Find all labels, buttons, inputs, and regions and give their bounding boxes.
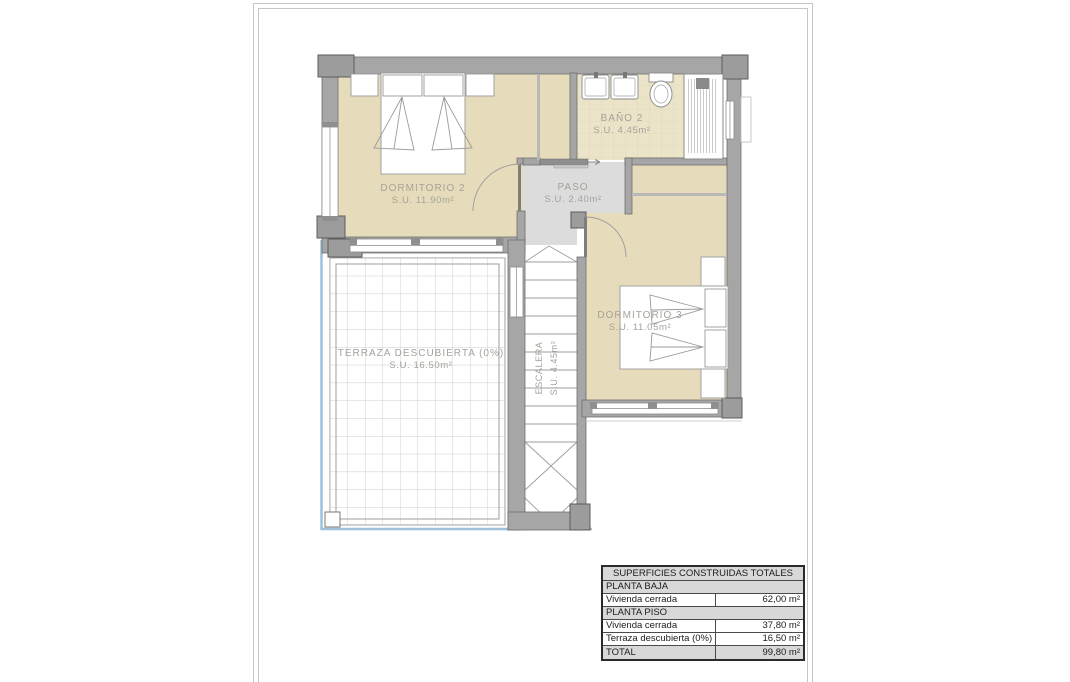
wall-stairs-right	[577, 257, 586, 530]
areas-table: SUPERFICIES CONSTRUIDAS TOTALES PLANTA B…	[601, 565, 805, 661]
nightstand-bottom	[701, 368, 725, 398]
areas-table-title: SUPERFICIES CONSTRUIDAS TOTALES	[603, 567, 803, 580]
dormitorio-3-closet-floor	[632, 162, 727, 217]
label-terraza: TERRAZA DESCUBIERTA (0%)	[338, 348, 504, 359]
label-dormitorio-2: DORMITORIO 2	[380, 183, 465, 194]
label-paso: PASO	[557, 182, 588, 193]
page: DORMITORIO 2 S.U. 11.90m² BAÑO 2 S.U. 4.…	[0, 0, 1070, 682]
pillow-left	[383, 75, 422, 96]
paso-stair-approach-floor	[523, 214, 577, 245]
sliding-door-bano	[540, 159, 588, 165]
label-dormitorio-2-area: S.U. 11.90m²	[392, 195, 454, 206]
nightstand-right	[466, 74, 494, 96]
label-dormitorio-3: DORMITORIO 3	[597, 310, 682, 321]
row-label: TOTAL	[603, 646, 715, 659]
nightstand-left	[351, 74, 378, 96]
table-row-total: TOTAL 99,80 m²	[603, 645, 803, 659]
label-dormitorio-3-area: S.U. 11.05m²	[609, 322, 671, 333]
nightstand-top	[701, 257, 725, 286]
terrace-corner-post	[325, 512, 340, 527]
label-escalera: ESCALERA	[534, 342, 544, 395]
wall-top	[322, 57, 748, 74]
label-paso-area: S.U. 2.40m²	[544, 194, 601, 205]
pillar-top-right	[722, 55, 748, 79]
door-leaf-dormitorio-3	[584, 217, 587, 257]
window-sill-outside	[741, 97, 751, 142]
faucet-left-icon	[594, 72, 598, 78]
label-escalera-area: S.U. 4.45m²	[549, 341, 559, 396]
wall-dorm2-bano	[570, 73, 577, 160]
wall-paso-left-top-stub	[517, 158, 523, 164]
wall-paso-right	[625, 158, 632, 214]
toilet-seat	[654, 85, 668, 103]
shower-drain-icon	[696, 78, 709, 89]
pillow-top	[705, 289, 726, 327]
pillow-right	[424, 75, 463, 96]
label-bano-2: BAÑO 2	[601, 111, 644, 124]
row-value: 16,50 m²	[715, 633, 803, 645]
sliding-door-track	[554, 165, 588, 168]
dormitorio-2-closet-floor	[540, 74, 570, 160]
label-terraza-area: S.U. 16.50m²	[389, 360, 452, 371]
row-value: 62,00 m²	[715, 594, 803, 606]
row-label: Vivienda cerrada	[603, 620, 715, 632]
row-label: Vivienda cerrada	[603, 594, 715, 606]
table-row: Vivienda cerrada 62,00 m²	[603, 593, 803, 606]
shower-tray-lines	[688, 79, 718, 153]
label-bano-2-area: S.U. 4.45m²	[593, 125, 650, 136]
sink-left-basin	[585, 78, 606, 96]
closet-divider-dorm2	[537, 74, 540, 160]
table-row: Vivienda cerrada 37,80 m²	[603, 619, 803, 632]
section-planta-piso: PLANTA PISO	[603, 606, 803, 619]
floor-plan-svg: DORMITORIO 2 S.U. 11.90m² BAÑO 2 S.U. 4.…	[0, 0, 1070, 682]
faucet-right-icon	[623, 72, 627, 78]
pillar-stairs-bottom	[570, 504, 590, 530]
row-value: 99,80 m²	[715, 646, 803, 659]
table-row: Terraza descubierta (0%) 16,50 m²	[603, 632, 803, 645]
row-label: Terraza descubierta (0%)	[603, 633, 715, 645]
row-value: 37,80 m²	[715, 620, 803, 632]
door-leaf-dormitorio-2	[518, 164, 521, 211]
closet-divider-dorm3	[632, 193, 727, 196]
pillar-top-left	[318, 55, 354, 77]
pillar-bottom-right	[722, 398, 742, 418]
sink-right-basin	[614, 78, 635, 96]
section-planta-baja: PLANTA BAJA	[603, 580, 803, 593]
terrace-tile-grid	[330, 258, 505, 525]
pillow-bottom	[705, 330, 726, 367]
pillar-paso-dorm3	[571, 212, 586, 228]
